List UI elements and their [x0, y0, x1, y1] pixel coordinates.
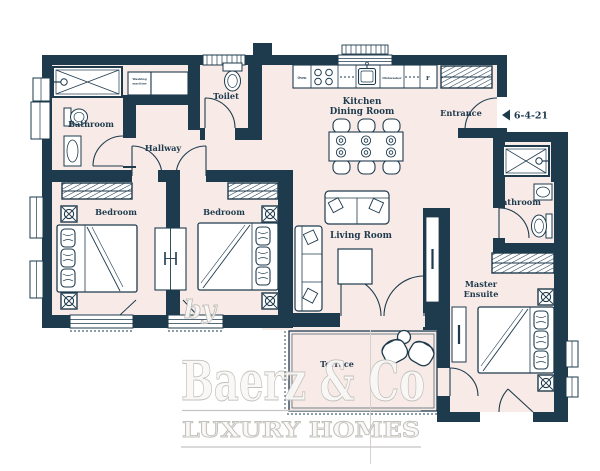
oven-label: Oven	[298, 76, 308, 80]
room-label-master-2: Ensuite	[464, 289, 499, 299]
sofa	[325, 191, 389, 224]
toilet-fixture	[532, 214, 553, 238]
counter	[151, 72, 188, 95]
dining-chair	[383, 119, 400, 133]
dining-chair	[358, 160, 375, 174]
wall-bathroom-r-right-upper	[551, 142, 568, 182]
floor-plan-svg: Oven Dishwasher F	[0, 0, 600, 471]
wall-hallway-bottom	[42, 170, 293, 182]
sink	[64, 136, 81, 166]
room-label-bedroom2: Bedroom	[203, 207, 245, 217]
bedside-light	[538, 289, 554, 305]
room-label-bathroom-tl: Bathroom	[68, 119, 114, 129]
dining-chair	[333, 160, 350, 174]
wall-top	[42, 55, 507, 65]
room-label-kitchen-1: Kitchen	[343, 97, 382, 107]
dining-chair	[358, 119, 375, 133]
wall-bathroom-r-right-lower	[554, 182, 568, 253]
room-label-toilet: Toilet	[213, 91, 239, 101]
bedside-light	[262, 293, 278, 309]
window-kitchen-top	[338, 55, 392, 65]
svg-text:Washing: Washing	[131, 77, 147, 81]
bed	[198, 223, 278, 290]
radiator	[452, 307, 466, 362]
svg-text:machine: machine	[132, 82, 146, 86]
shower	[503, 146, 549, 176]
between-bedrooms-unit	[155, 228, 186, 290]
room-label-hallway: Hallway	[145, 143, 182, 153]
watermark-name: Baerz & Co	[181, 349, 425, 413]
washing-machine: Washing machine	[128, 72, 151, 95]
wall-master-top	[493, 243, 566, 253]
room-label-living: Living Room	[330, 231, 393, 241]
kitchen-counter: Oven Dishwasher F	[293, 62, 437, 88]
fridge-label: F	[426, 76, 430, 82]
bedside-light	[538, 375, 554, 391]
dining-chair	[333, 119, 350, 133]
gap-french-doors	[340, 313, 425, 327]
wall-bathroom-tl-top	[123, 95, 190, 105]
gap-entrance-door	[497, 97, 507, 128]
wall-right-entry	[497, 55, 507, 97]
window-bathroom-left-2	[31, 102, 50, 139]
bedside-light	[262, 206, 278, 222]
chaise-sofa	[295, 226, 322, 311]
watermark-tagline: LUXURY HOMES	[182, 417, 420, 442]
wardrobe-bedroom1	[62, 183, 132, 199]
room-label-kitchen-2: Dining Room	[330, 107, 395, 117]
wall-chimney	[253, 43, 272, 55]
gap-toilet-door	[205, 128, 235, 140]
wall-living-bedroom2	[278, 170, 293, 327]
shower	[53, 67, 122, 97]
gap-master-terrace-door	[480, 412, 533, 422]
wardrobe-bedroom2	[228, 183, 278, 199]
reference-number: 6-4-21	[514, 111, 548, 122]
wall-toilet-left	[188, 55, 200, 130]
room-label-bathroom-r: Bathroom	[495, 197, 541, 207]
room-label-bedroom1: Bedroom	[95, 207, 137, 217]
plan-reference: 6-4-21	[502, 110, 548, 122]
coat-closet-entrance	[441, 66, 492, 88]
dining-chair	[383, 160, 400, 174]
bedside-light	[61, 206, 77, 222]
bed	[478, 307, 554, 373]
extractor-vent	[342, 45, 388, 54]
window-bathroom-left-1	[33, 78, 50, 101]
bedside-light	[61, 293, 77, 309]
room-label-entrance: Entrance	[440, 108, 482, 118]
gap-master-entry	[437, 368, 450, 396]
watermark-by: by	[184, 295, 217, 324]
toilet-room-fixture	[223, 63, 242, 91]
wall-bathroom-r-top	[493, 132, 568, 142]
window-bedroom1-left-1	[30, 197, 43, 238]
wall-toilet-right	[248, 55, 262, 140]
gap-bedroom2-door	[180, 170, 206, 182]
room-label-master-1: Master	[465, 279, 498, 289]
floor-plan-page: Oven Dishwasher F	[0, 0, 600, 471]
dining-set	[329, 119, 403, 174]
gap-bedroom1-door	[132, 170, 158, 182]
window-master-right-1	[566, 341, 578, 367]
wardrobe-master	[492, 253, 554, 273]
window-bedroom1-left-2	[30, 261, 43, 298]
bed	[57, 225, 137, 292]
dishwasher-label: Dishwasher	[382, 76, 402, 80]
window-master-right-2	[566, 377, 578, 397]
gap-bathroom-tl-door	[123, 138, 136, 166]
wall-niche	[426, 217, 439, 302]
coffee-table	[338, 249, 372, 284]
